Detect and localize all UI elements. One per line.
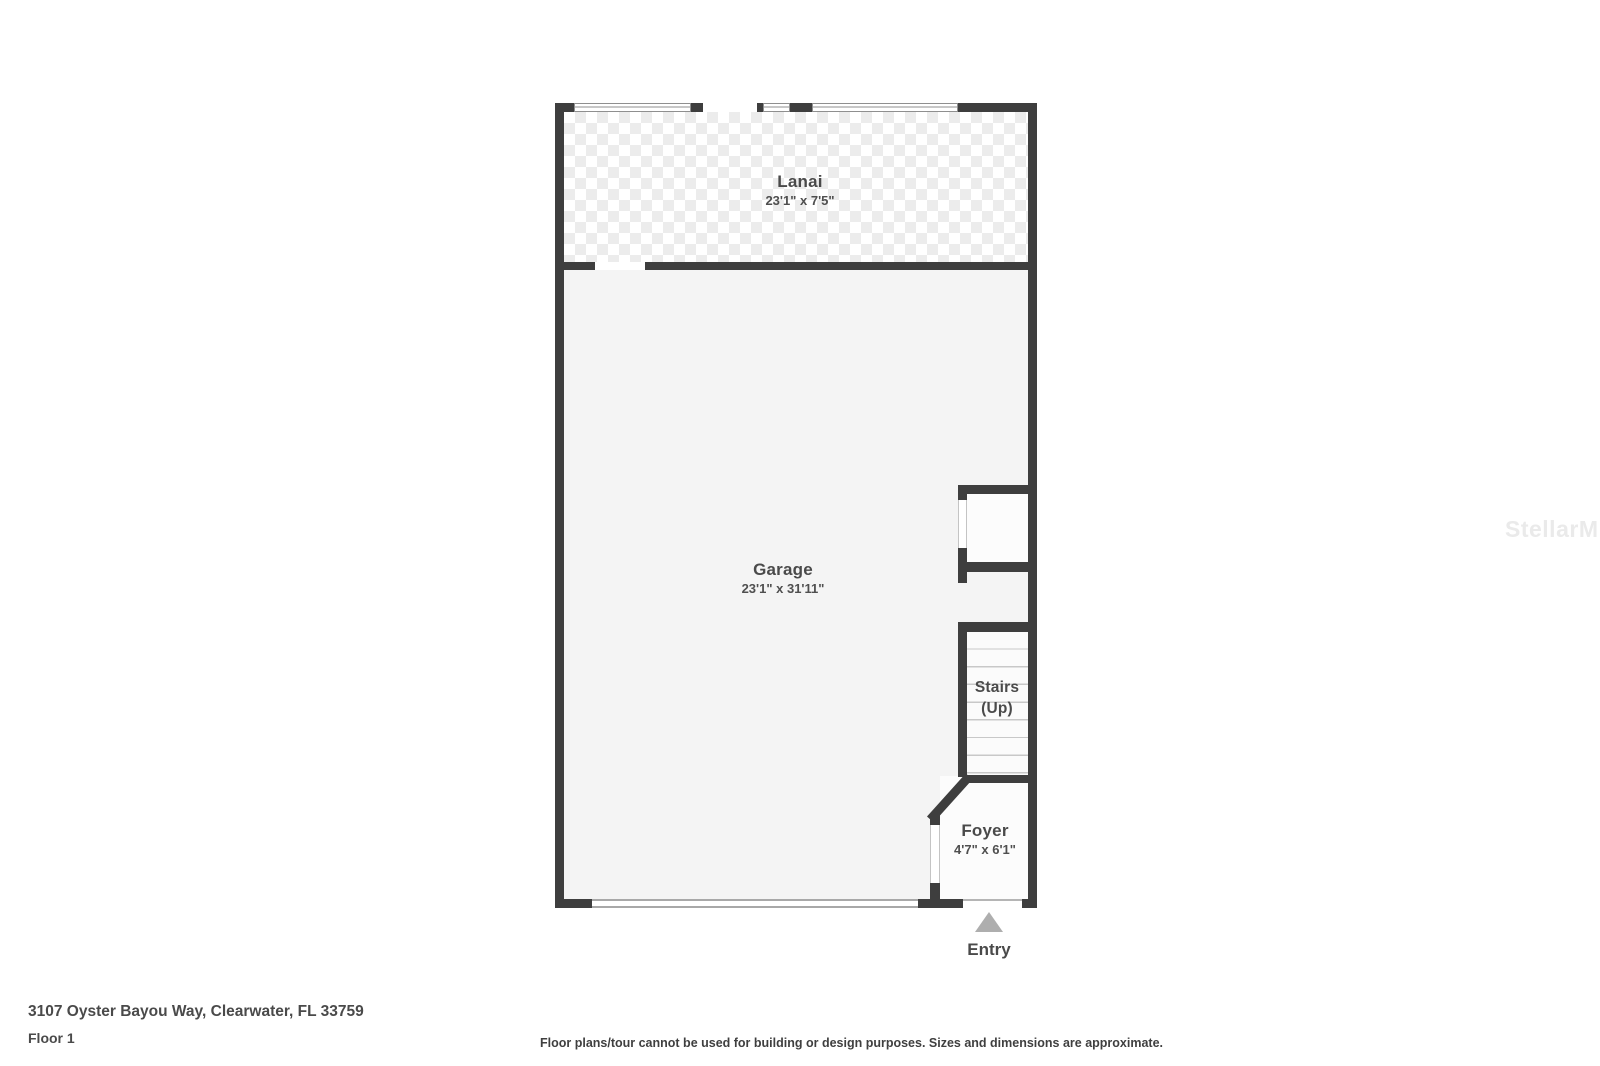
stairs-direction: (Up) — [975, 698, 1019, 719]
room-name: Lanai — [765, 172, 834, 191]
wall-foyer-left — [930, 814, 940, 825]
wall-top-segment — [958, 103, 1037, 112]
disclaimer-text: Floor plans/tour cannot be used for buil… — [540, 1036, 1020, 1050]
room-dims: 23'1" x 7'5" — [765, 193, 834, 208]
door-opening — [958, 500, 967, 548]
wall-left — [555, 103, 564, 908]
foyer-label: Foyer 4'7" x 6'1" — [954, 821, 1016, 857]
wall-divider-segment — [645, 262, 1037, 270]
wall-divider-segment — [555, 262, 595, 270]
stairs-label: Stairs (Up) — [975, 677, 1019, 719]
window — [574, 103, 691, 112]
room-name: Garage — [742, 560, 825, 579]
window — [812, 103, 958, 112]
door-opening — [930, 825, 940, 883]
opening — [703, 103, 757, 112]
wall-closet-top — [958, 485, 1037, 494]
floorplan-page: Lanai 23'1" x 7'5" Garage 23'1" x 31'11"… — [0, 0, 1600, 1066]
wall-foyer-left — [930, 883, 940, 900]
wall-stairs-bottom — [963, 775, 1037, 783]
wall-closet-stub — [958, 572, 967, 583]
garage-door-opening — [592, 899, 918, 908]
wall-top-segment — [555, 103, 574, 112]
wall-right — [1028, 103, 1037, 908]
wall-closet-bottom — [958, 562, 1037, 572]
wall-bottom-segment — [555, 899, 592, 908]
room-name: Stairs — [975, 677, 1019, 698]
room-dims: 23'1" x 31'11" — [742, 581, 825, 596]
lanai-label: Lanai 23'1" x 7'5" — [765, 172, 834, 208]
entry-label: Entry — [967, 940, 1010, 960]
closet-room — [967, 494, 1028, 562]
floor-number: Floor 1 — [28, 1030, 75, 1046]
wall-bottom-segment — [1022, 899, 1037, 908]
entry-arrow-icon — [975, 912, 1003, 932]
entry-door-opening — [963, 899, 1022, 908]
wall-bottom-segment — [918, 899, 963, 908]
room-dims: 4'7" x 6'1" — [954, 842, 1016, 857]
stellar-mls-watermark: StellarMLS — [1505, 516, 1600, 543]
floorplan: Lanai 23'1" x 7'5" Garage 23'1" x 31'11"… — [555, 103, 1037, 908]
door-opening — [595, 262, 645, 270]
wall-top-segment — [790, 103, 812, 112]
wall-stairs-top — [958, 622, 1037, 632]
wall-stairs-left — [958, 632, 967, 777]
room-name: Foyer — [954, 821, 1016, 840]
garage-label: Garage 23'1" x 31'11" — [742, 560, 825, 596]
wall-top-segment — [691, 103, 703, 112]
wall-closet-left — [958, 548, 967, 563]
address-text: 3107 Oyster Bayou Way, Clearwater, FL 33… — [28, 1003, 364, 1021]
window — [763, 103, 790, 112]
